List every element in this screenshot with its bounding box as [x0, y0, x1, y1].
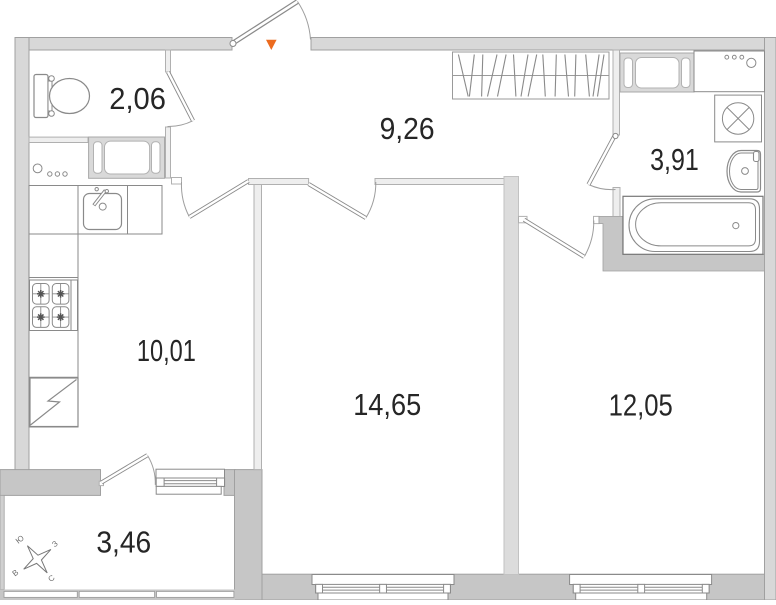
svg-text:9,26: 9,26 [380, 112, 435, 146]
svg-text:2,06: 2,06 [109, 82, 166, 116]
svg-text:14,65: 14,65 [353, 388, 421, 422]
svg-text:10,01: 10,01 [137, 334, 196, 368]
svg-text:3,91: 3,91 [650, 143, 699, 177]
svg-text:3,46: 3,46 [96, 526, 151, 560]
svg-text:12,05: 12,05 [609, 388, 673, 422]
